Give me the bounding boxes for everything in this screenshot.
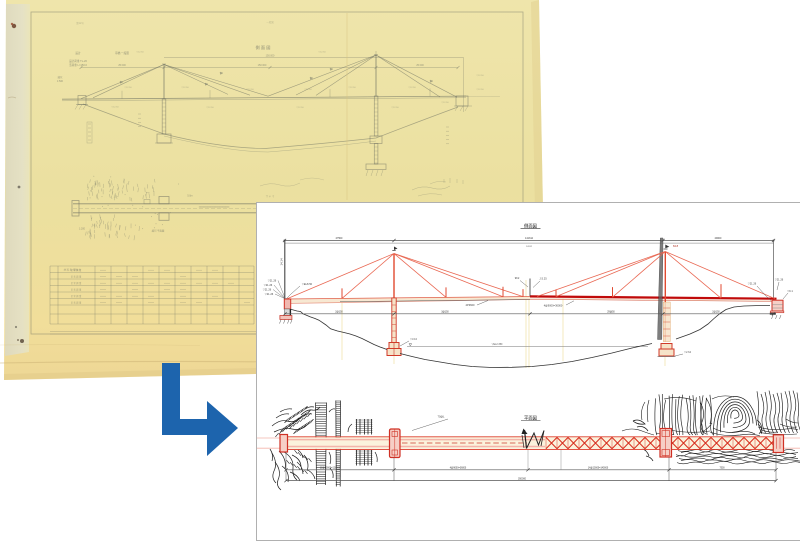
svg-text:2@150: 2@150 (712, 312, 720, 314)
svg-text:▽12.50: ▽12.50 (304, 88, 312, 91)
svg-text:サ ヤ マ: サ ヤ マ (266, 194, 275, 198)
svg-text:2@150: 2@150 (335, 312, 343, 314)
svg-text:7500: 7500 (719, 468, 725, 470)
svg-text:▽21.26: ▽21.26 (775, 278, 784, 282)
svg-text:J.S.25: J.S.25 (539, 277, 547, 281)
svg-text:▽12.50: ▽12.50 (476, 74, 484, 77)
svg-text:▽12.50: ▽12.50 (476, 88, 484, 91)
svg-text:▽EL2.350: ▽EL2.350 (492, 343, 503, 346)
svg-text:▽21.26: ▽21.26 (263, 288, 272, 292)
svg-text:▽12.50: ▽12.50 (318, 51, 326, 54)
svg-text:1:500: 1:500 (57, 80, 64, 83)
svg-text:▽12.50: ▽12.50 (408, 86, 416, 89)
svg-text:吊橋 一般図: 吊橋 一般図 (115, 51, 129, 55)
svg-text:84.8: 84.8 (673, 244, 679, 248)
svg-text:▽3.10: ▽3.10 (410, 337, 418, 341)
svg-text:150 000: 150 000 (258, 64, 267, 67)
svg-text:350000: 350000 (518, 478, 527, 481)
svg-text:▽12.50: ▽12.50 (111, 106, 119, 109)
svg-text:4@9000=36000: 4@9000=36000 (450, 468, 467, 470)
svg-text:29000: 29000 (715, 237, 722, 240)
svg-text:1:200: 1:200 (79, 228, 86, 231)
svg-text:12@10000=120000: 12@10000=120000 (320, 468, 341, 470)
svg-text:14312: 14312 (526, 246, 533, 248)
svg-text:150.000: 150.000 (266, 55, 275, 58)
svg-text:縮尺 平面図: 縮尺 平面図 (152, 229, 165, 233)
svg-text:側面図: 側面図 (524, 222, 537, 229)
svg-text:14@10000=140000: 14@10000=140000 (588, 468, 609, 470)
svg-text:▽12.50: ▽12.50 (348, 86, 356, 89)
svg-text:▽12.50: ▽12.50 (441, 101, 449, 104)
svg-text:▽12.50: ▽12.50 (124, 86, 132, 89)
svg-text:側 面 図: 側 面 図 (256, 44, 271, 51)
svg-text:27500: 27500 (336, 237, 343, 240)
svg-text:5.0m: 5.0m (187, 195, 192, 198)
svg-text:▽12.50: ▽12.50 (391, 106, 399, 109)
svg-text:━━━━━━━━━━━━━━━━━━: ━━━━━━━━━━━━━━━━━━ (198, 205, 230, 209)
svg-text:25 000: 25 000 (118, 64, 126, 67)
svg-text:▽21.26: ▽21.26 (264, 283, 273, 287)
svg-text:縮尺: 縮尺 (58, 75, 63, 79)
svg-text:▽EL8.50: ▽EL8.50 (302, 282, 313, 286)
svg-text:29@50: 29@50 (607, 312, 615, 314)
svg-text:4P3600: 4P3600 (466, 303, 476, 307)
svg-text:70@L: 70@L (438, 415, 446, 419)
svg-text:▽12.50: ▽12.50 (246, 88, 254, 91)
svg-text:▽9.1: ▽9.1 (787, 289, 793, 293)
svg-text:第12号: 第12号 (76, 21, 84, 25)
svg-text:活荷重 L=150.0: 活荷重 L=150.0 (69, 63, 88, 67)
svg-text:14.14: 14.14 (280, 258, 284, 265)
svg-text:▽2.64: ▽2.64 (684, 350, 692, 354)
svg-text:▽12.50: ▽12.50 (206, 106, 214, 109)
svg-text:設計: 設計 (75, 51, 81, 55)
svg-text:▽21.26: ▽21.26 (748, 282, 757, 286)
svg-text:▽21.26: ▽21.26 (268, 279, 277, 283)
svg-text:4@9000=36000: 4@9000=36000 (544, 304, 563, 308)
svg-text:25 000: 25 000 (416, 64, 424, 67)
svg-text:▽12.50: ▽12.50 (181, 86, 189, 89)
svg-text:▽12.50: ▽12.50 (296, 106, 304, 109)
svg-text:3@150: 3@150 (441, 312, 449, 314)
svg-text:一般図: 一般図 (266, 20, 274, 24)
svg-text:141312: 141312 (525, 237, 534, 240)
svg-text:9K2: 9K2 (515, 276, 520, 280)
svg-text:設計荷重 TL-20: 設計荷重 TL-20 (69, 59, 87, 63)
svg-text:▽12.50: ▽12.50 (136, 51, 144, 54)
svg-text:▽21.26: ▽21.26 (265, 292, 274, 296)
